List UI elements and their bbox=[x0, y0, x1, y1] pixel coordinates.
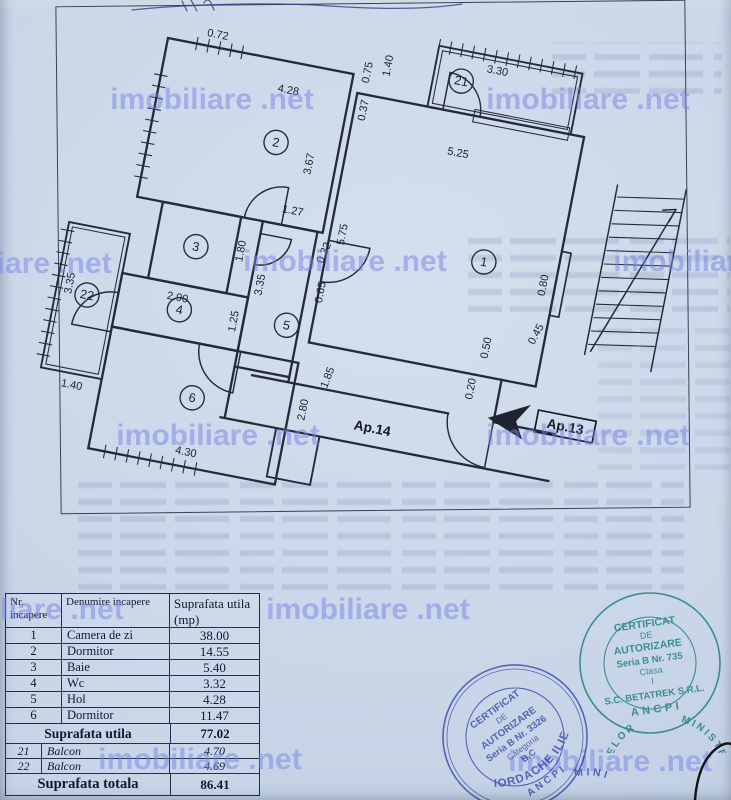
watermark: imobiliare .net bbox=[266, 593, 469, 627]
room-number: 1 bbox=[479, 255, 489, 270]
stamp-ring-text: MINISTERUL ADMINISTRATIEI INTERNELOR bbox=[492, 743, 610, 800]
table-cell: 5 bbox=[6, 692, 62, 707]
table-cell: 4.28 bbox=[170, 692, 259, 707]
room-6-outline bbox=[88, 327, 298, 485]
table-cell: 11.47 bbox=[170, 708, 259, 723]
dim-label: 1.80 bbox=[233, 240, 249, 263]
dim-label: 0.50 bbox=[479, 336, 495, 359]
table-balcony-row: 22Balcon4.69 bbox=[6, 758, 259, 773]
stamp-ring-text: MINISTERUL ADMINISTRATIEI SI INTERNELOR bbox=[592, 709, 731, 753]
svg-text:IORDACHE ILIE: IORDACHE ILIE bbox=[488, 725, 581, 800]
svg-text:MINISTERUL ADMINISTRATIEI INTE: MINISTERUL ADMINISTRATIEI INTERNELOR bbox=[492, 743, 610, 800]
svg-text:DE: DE bbox=[639, 629, 653, 641]
table-cell: Nr.incapere bbox=[6, 594, 62, 627]
scanned-floorplan-page: 0.724.283.670.750.375.755.251.403.300.80… bbox=[0, 0, 731, 800]
table-cell: 77.02 bbox=[171, 724, 259, 743]
dim-label: 4.28 bbox=[277, 82, 300, 98]
floor-plan: 0.724.283.670.750.375.755.251.403.300.80… bbox=[0, 0, 731, 580]
table-cell: Suprafata utila(mp) bbox=[170, 594, 259, 627]
svg-text:B.C: B.C bbox=[519, 747, 538, 764]
table-cell: 4 bbox=[6, 676, 62, 691]
dim-label: 5.25 bbox=[446, 145, 469, 161]
table-cell: Wc bbox=[62, 676, 170, 691]
dim-label: 2.80 bbox=[295, 398, 311, 421]
room-number: 22 bbox=[79, 287, 95, 303]
svg-text:DE: DE bbox=[494, 711, 510, 726]
stamp-name-text: IORDACHE ILIE bbox=[488, 725, 581, 800]
room-number: 5 bbox=[282, 318, 292, 333]
table-cell: Dormitor bbox=[62, 708, 170, 723]
room-number: 4 bbox=[175, 302, 185, 317]
apartment-14-label: Ap.14 bbox=[353, 417, 393, 439]
room-number: 2 bbox=[271, 135, 281, 150]
table-cell: Balcon bbox=[42, 744, 170, 758]
table-cell: 4.70 bbox=[170, 744, 259, 758]
table-cell: Denumire incapere bbox=[62, 594, 170, 627]
table-cell: Dormitor bbox=[62, 644, 170, 659]
dim-label: 0.20 bbox=[463, 377, 479, 400]
svg-text:CERTIFICAT: CERTIFICAT bbox=[613, 614, 676, 635]
table-cell: 38.00 bbox=[170, 628, 259, 643]
svg-text:Seria B Nr. 3326: Seria B Nr. 3326 bbox=[484, 713, 549, 764]
svg-text:ANCPI: ANCPI bbox=[630, 700, 683, 719]
dim-label: 3.35 bbox=[252, 273, 268, 296]
dim-label: 1.85 bbox=[318, 366, 337, 390]
corridor-walls bbox=[221, 329, 566, 481]
table-total-row: Suprafata totala86.41 bbox=[6, 773, 259, 795]
table-cell: Suprafata utila bbox=[6, 724, 171, 743]
svg-text:Categoria: Categoria bbox=[505, 732, 541, 762]
stamp-iordache: MINISTERUL ADMINISTRATIEI INTERNELOR CER… bbox=[420, 642, 610, 800]
stamp-betatrek: MINISTERUL ADMINISTRATIEI SI INTERNELOR … bbox=[560, 573, 731, 753]
room-number: 21 bbox=[453, 73, 469, 89]
dim-label: 0.65 bbox=[313, 281, 329, 304]
stairs-edges bbox=[584, 177, 686, 371]
svg-text:I: I bbox=[651, 676, 655, 686]
svg-text:AUTORIZARE: AUTORIZARE bbox=[613, 636, 683, 657]
table-cell: Baie bbox=[62, 660, 170, 675]
table-cell: 3 bbox=[6, 660, 62, 675]
stairs-direction-arrow bbox=[591, 199, 676, 362]
handwriting-mark bbox=[130, 0, 470, 18]
dim-label: 4.30 bbox=[174, 444, 197, 460]
balcony-21-outline bbox=[427, 46, 582, 135]
dim-label: 5.75 bbox=[335, 223, 351, 246]
table-cell: 2 bbox=[6, 644, 62, 659]
table-cell: 1 bbox=[6, 628, 62, 643]
room-number: 3 bbox=[191, 239, 201, 254]
corridor-step bbox=[267, 428, 320, 485]
table-cell: Camera de zi bbox=[62, 628, 170, 643]
table-cell: 22 bbox=[6, 759, 42, 773]
watermark: imobiliare .net bbox=[508, 745, 711, 779]
table-balcony-row: 21Balcon4.70 bbox=[6, 743, 259, 758]
dim-label: 0.75 bbox=[360, 61, 376, 84]
table-cell: 5.40 bbox=[170, 660, 259, 675]
dim-label: 3.30 bbox=[486, 63, 509, 79]
svg-text:S.C. BETATREK S.R.L.: S.C. BETATREK S.R.L. bbox=[604, 683, 706, 708]
dim-label: 1.25 bbox=[226, 310, 242, 333]
table-cell: Suprafata totala bbox=[6, 774, 171, 795]
table-subtotal-row: Suprafata utila77.02 bbox=[6, 723, 259, 743]
dim-label: 3.67 bbox=[302, 152, 318, 175]
room-areas-table: Nr.incapereDenumire incapereSuprafata ut… bbox=[5, 593, 260, 796]
table-cell: 4.69 bbox=[170, 759, 259, 773]
table-header-row: Nr.incapereDenumire incapereSuprafata ut… bbox=[6, 594, 259, 627]
table-cell: Hol bbox=[62, 692, 170, 707]
room-1-outline bbox=[309, 93, 584, 387]
svg-text:Clasa: Clasa bbox=[639, 664, 663, 677]
table-row: 6Dormitor11.47 bbox=[6, 707, 259, 723]
svg-text:AUTORIZARE: AUTORIZARE bbox=[479, 705, 539, 753]
table-cell: 3.32 bbox=[170, 676, 259, 691]
door-arcs bbox=[60, 11, 557, 468]
table-cell: 6 bbox=[6, 708, 62, 723]
dim-label: 1.40 bbox=[380, 54, 396, 77]
plan-labels: 0.724.283.670.750.375.755.251.403.300.80… bbox=[36, 0, 660, 534]
stairs-hatch bbox=[589, 187, 684, 357]
table-cell: 21 bbox=[6, 744, 42, 758]
svg-text:Seria B Nr. 735: Seria B Nr. 735 bbox=[616, 650, 684, 670]
room-number: 6 bbox=[187, 390, 197, 405]
table-row: 1Camera de zi38.00 bbox=[6, 627, 259, 643]
dim-label: 0.32 bbox=[315, 241, 334, 265]
dim-label: 1.40 bbox=[60, 377, 83, 393]
dim-label: 0.80 bbox=[536, 274, 552, 297]
dim-label: 0.37 bbox=[356, 99, 372, 122]
dim-label: 1.27 bbox=[281, 203, 304, 219]
svg-text:ANCPI: ANCPI bbox=[525, 763, 569, 799]
svg-text:CERTIFICAT: CERTIFICAT bbox=[468, 688, 522, 731]
table-row: 5Hol4.28 bbox=[6, 691, 259, 707]
table-row: 2Dormitor14.55 bbox=[6, 643, 259, 659]
svg-text:MINISTERUL ADMINISTRATIEI SI I: MINISTERUL ADMINISTRATIEI SI INTERNELOR bbox=[592, 709, 731, 753]
table-cell: Balcon bbox=[42, 759, 170, 773]
table-cell: 86.41 bbox=[171, 774, 259, 795]
table-row: 4Wc3.32 bbox=[6, 675, 259, 691]
table-cell: 14.55 bbox=[170, 644, 259, 659]
table-row: 3Baie5.40 bbox=[6, 659, 259, 675]
